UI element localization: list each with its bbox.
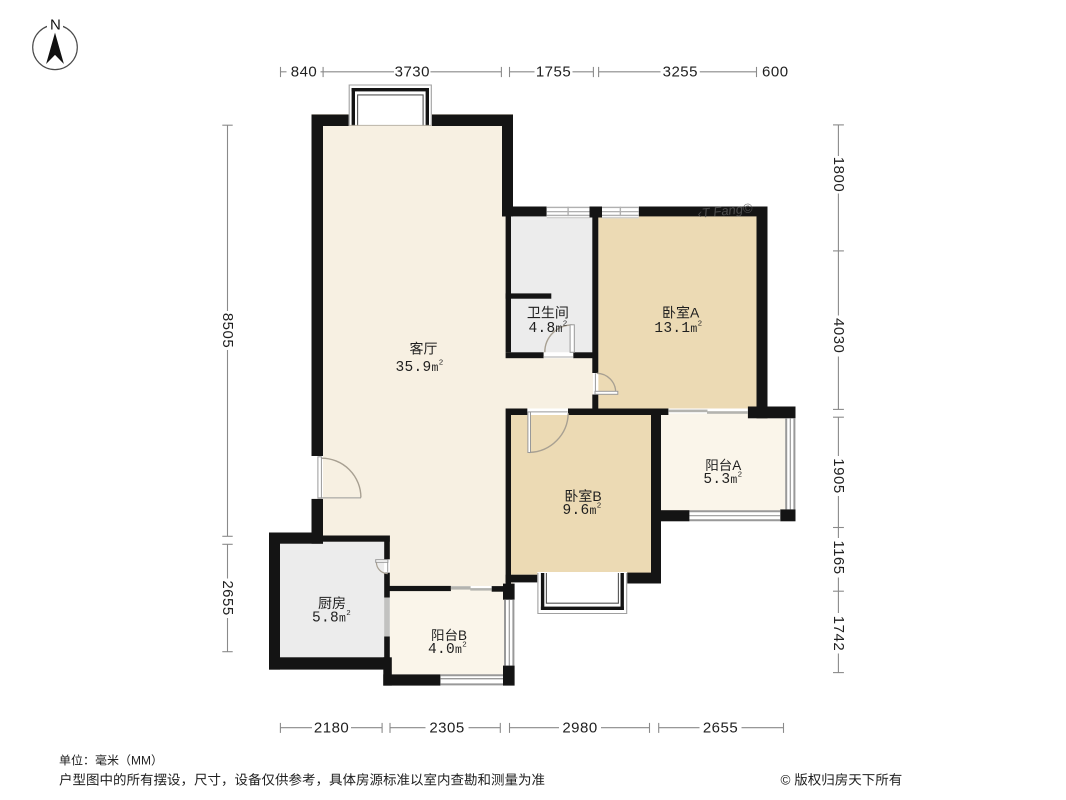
svg-text:1755: 1755 [536,64,571,81]
svg-text:35.9m2: 35.9m2 [395,360,443,377]
svg-text:840: 840 [291,64,318,81]
svg-text:2980: 2980 [562,720,597,737]
svg-text:3730: 3730 [395,64,430,81]
svg-text:3255: 3255 [663,64,698,81]
svg-text:客厅: 客厅 [410,339,438,359]
svg-text:1905: 1905 [830,458,847,493]
svg-text:8505: 8505 [219,313,236,348]
svg-text:13.1m2: 13.1m2 [654,321,702,338]
svg-text:9.6m2: 9.6m2 [562,503,601,520]
svg-text:2655: 2655 [703,720,738,737]
svg-text:4030: 4030 [830,318,847,353]
svg-text:N: N [50,17,61,34]
svg-text:2180: 2180 [314,720,349,737]
svg-text:1165: 1165 [830,540,847,574]
svg-text:5.3m2: 5.3m2 [703,472,742,489]
svg-text:户型图中的所有摆设，尺寸，设备仅供参考，具体房源标准以室内查: 户型图中的所有摆设，尺寸，设备仅供参考，具体房源标准以室内查勘和测量为准 [59,769,545,789]
svg-text:阳台A: 阳台A [705,454,741,474]
svg-text:2305: 2305 [429,720,464,737]
svg-text:1742: 1742 [830,616,847,651]
svg-text:600: 600 [762,64,789,81]
svg-text:© 版权归房天下所有: © 版权归房天下所有 [781,769,903,789]
svg-text:2655: 2655 [219,580,236,615]
svg-text:卫生间: 卫生间 [527,302,569,322]
svg-text:4.0m2: 4.0m2 [428,641,467,658]
svg-text:5.8m2: 5.8m2 [312,610,351,627]
svg-text:1800: 1800 [830,157,847,192]
svg-text:卧室A: 卧室A [662,303,700,323]
svg-text:单位：毫米（MM）: 单位：毫米（MM） [59,752,163,769]
svg-text:4.8m2: 4.8m2 [528,321,567,338]
